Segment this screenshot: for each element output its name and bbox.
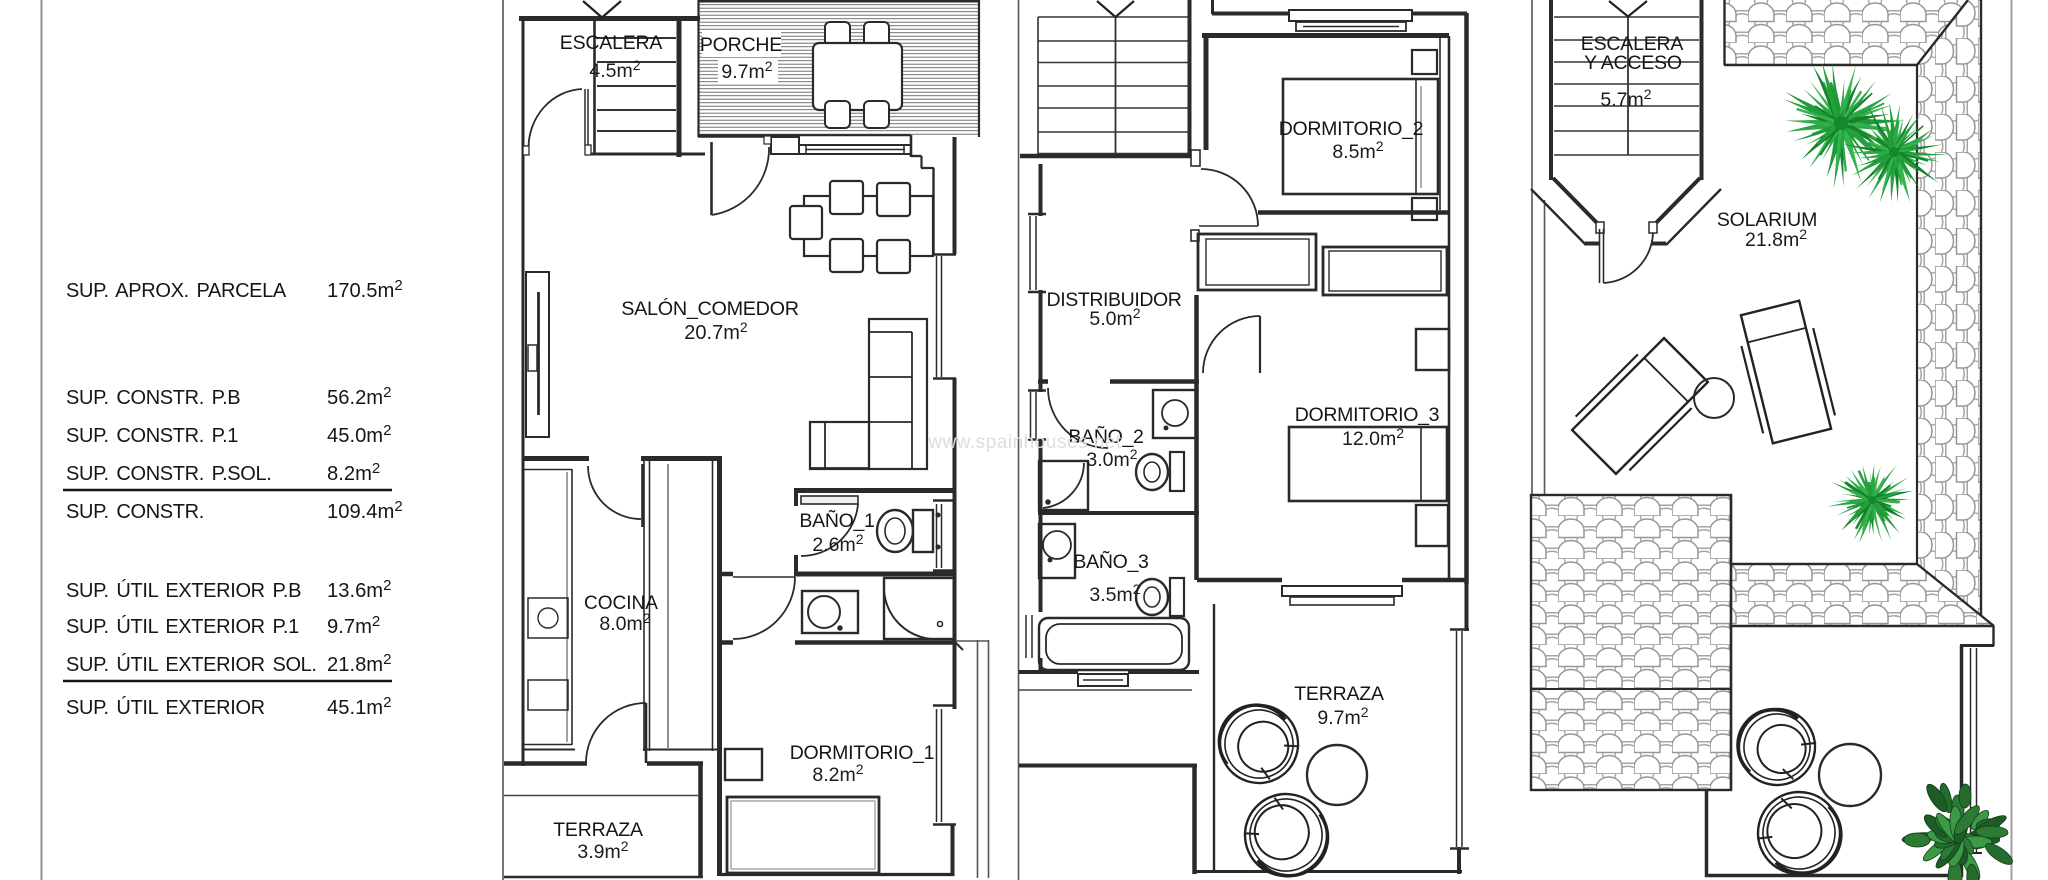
svg-text:SUP. CONSTR. P.B: SUP. CONSTR. P.B (66, 387, 240, 409)
svg-text:ESCALERA: ESCALERA (560, 32, 663, 54)
svg-text:TERRAZA: TERRAZA (1294, 683, 1384, 705)
svg-text:170.5m2: 170.5m2 (327, 277, 403, 302)
svg-text:BAÑO_3: BAÑO_3 (1073, 549, 1148, 573)
svg-text:BAÑO_1: BAÑO_1 (799, 508, 874, 532)
svg-text:13.6m2: 13.6m2 (327, 577, 391, 602)
svg-text:SUP. ÚTIL EXTERIOR P.1: SUP. ÚTIL EXTERIOR P.1 (66, 615, 299, 638)
svg-text:SUP. APROX. PARCELA: SUP. APROX. PARCELA (66, 280, 287, 302)
svg-text:TERRAZA: TERRAZA (553, 819, 643, 841)
svg-text:www.spainhouses.net: www.spainhouses.net (927, 432, 1121, 453)
svg-text:SUP. ÚTIL EXTERIOR P.B: SUP. ÚTIL EXTERIOR P.B (66, 579, 301, 602)
svg-text:109.4m2: 109.4m2 (327, 498, 403, 523)
svg-text:45.0m2: 45.0m2 (327, 422, 391, 447)
svg-text:SUP. CONSTR. P.SOL.: SUP. CONSTR. P.SOL. (66, 463, 271, 485)
svg-text:20.7m2: 20.7m2 (684, 319, 748, 344)
svg-text:PORCHE: PORCHE (700, 34, 782, 56)
svg-text:21.8m2: 21.8m2 (1745, 226, 1807, 251)
svg-text:12.0m2: 12.0m2 (1342, 425, 1404, 450)
svg-text:SUP. CONSTR. P.1: SUP. CONSTR. P.1 (66, 425, 238, 447)
svg-text:SALÓN_COMEDOR: SALÓN_COMEDOR (621, 297, 798, 320)
svg-text:DORMITORIO_2: DORMITORIO_2 (1279, 118, 1423, 140)
svg-text:SUP. CONSTR.: SUP. CONSTR. (66, 501, 204, 523)
svg-text:DORMITORIO_3: DORMITORIO_3 (1295, 404, 1439, 426)
svg-text:56.2m2: 56.2m2 (327, 384, 391, 409)
svg-text:SUP. ÚTIL EXTERIOR SOL.: SUP. ÚTIL EXTERIOR SOL. (66, 653, 317, 676)
svg-text:SUP. ÚTIL EXTERIOR: SUP. ÚTIL EXTERIOR (66, 696, 265, 719)
svg-text:Y ACCESO: Y ACCESO (1584, 52, 1682, 74)
svg-text:21.8m2: 21.8m2 (327, 651, 391, 676)
svg-text:45.1m2: 45.1m2 (327, 694, 391, 719)
